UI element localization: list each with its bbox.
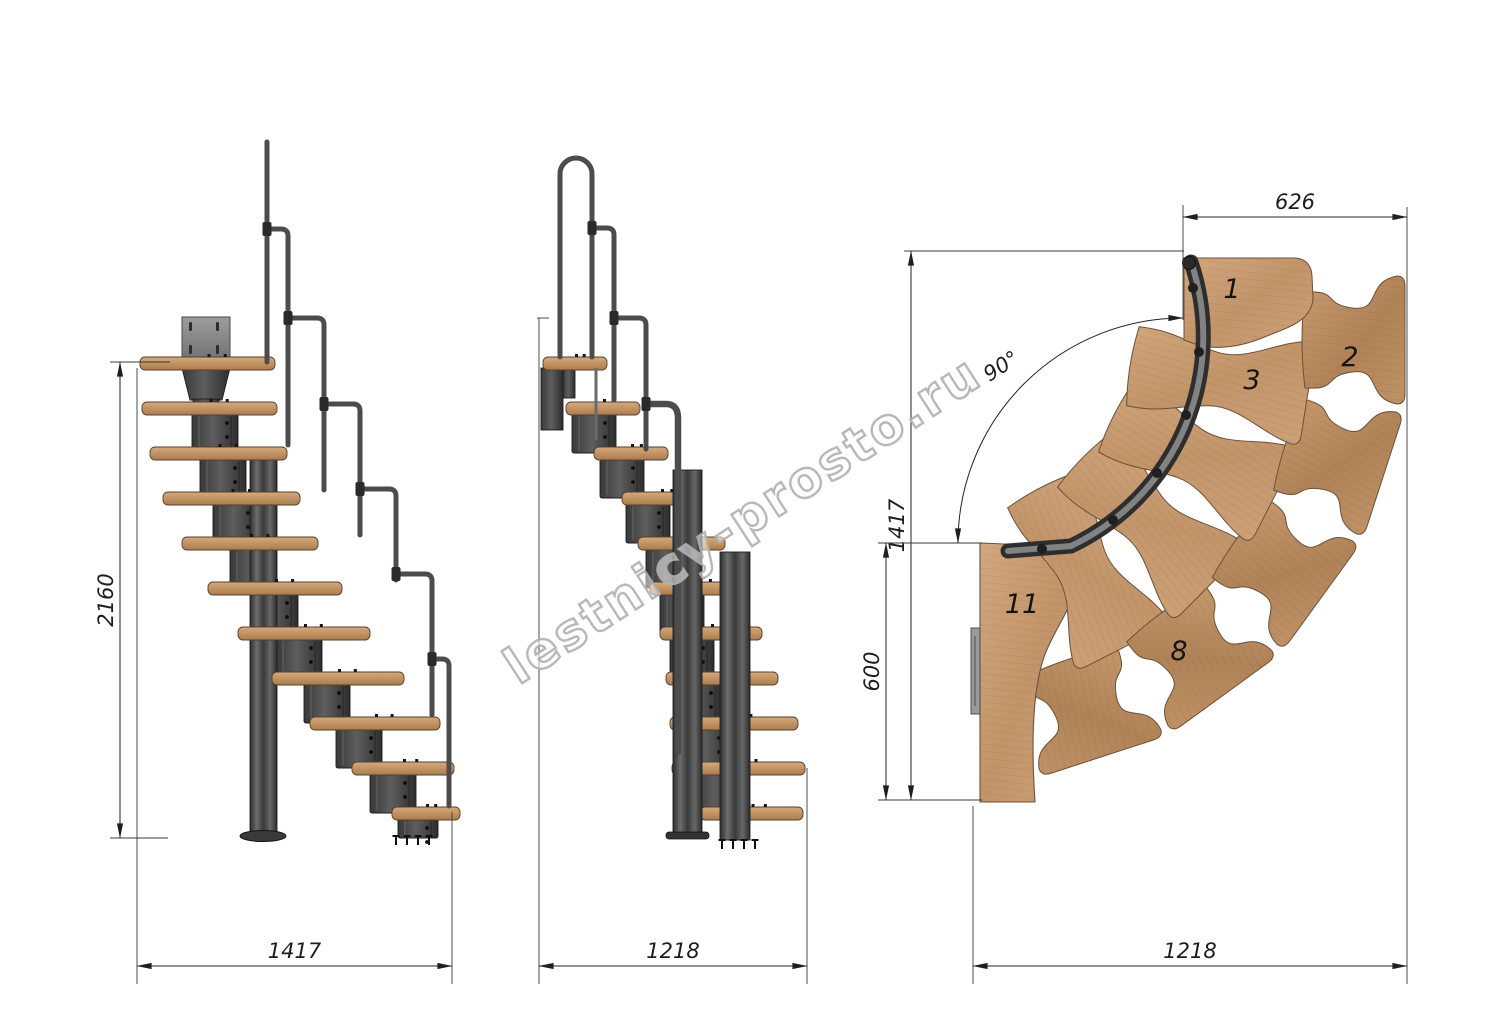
tread-side bbox=[594, 447, 668, 460]
drawing-page: 21601417 1218 6261417600121890°123811 le… bbox=[0, 0, 1500, 1027]
bolt-nub bbox=[232, 489, 235, 492]
bolt-nub bbox=[631, 444, 634, 447]
bolt-nub bbox=[709, 579, 712, 582]
bolt-nub bbox=[338, 669, 341, 672]
tread-side bbox=[140, 357, 275, 370]
bolt-nub bbox=[603, 399, 606, 402]
bolt-nub bbox=[661, 489, 664, 492]
bolt-nub bbox=[764, 804, 767, 807]
rail-joint-collar bbox=[392, 567, 401, 581]
staircase-technical-drawing: 21601417 1218 6261417600121890°123811 le… bbox=[0, 0, 1500, 1027]
bolt bbox=[403, 795, 407, 799]
bolt-nub bbox=[375, 714, 378, 717]
bolt bbox=[657, 511, 661, 515]
plan-dim-top-label: 626 bbox=[1275, 190, 1315, 214]
rail-joint-collar bbox=[320, 397, 329, 411]
column-foot bbox=[666, 832, 709, 839]
bolt bbox=[285, 601, 289, 605]
bolt bbox=[603, 421, 607, 425]
rail-joint-collar bbox=[610, 311, 619, 325]
bolt bbox=[225, 421, 229, 425]
bolt bbox=[337, 705, 341, 709]
plan-tread-label: 11 bbox=[1005, 589, 1039, 620]
bolt-nub bbox=[426, 804, 429, 807]
bolt bbox=[246, 511, 250, 515]
rail-joint-collar bbox=[284, 311, 293, 325]
bolt-nub bbox=[291, 579, 294, 582]
handrail-segment bbox=[324, 404, 360, 535]
bolt bbox=[631, 480, 635, 484]
bolt-nub bbox=[434, 804, 437, 807]
bolt bbox=[309, 660, 313, 664]
rail-joint-collar bbox=[263, 222, 272, 236]
bolt bbox=[603, 435, 607, 439]
bolt-nub bbox=[583, 354, 586, 357]
bolt bbox=[657, 525, 661, 529]
plan-view: 6261417600121890°123811 bbox=[860, 190, 1407, 984]
side-elevation-view: 21601417 bbox=[94, 142, 460, 984]
handrail-segment bbox=[614, 318, 646, 449]
bolt-nub bbox=[275, 579, 278, 582]
bolt-nub bbox=[210, 399, 213, 402]
bolt-nub bbox=[711, 624, 714, 627]
handrail-segment bbox=[288, 318, 324, 490]
handrail-joint bbox=[1188, 283, 1198, 293]
tread-side bbox=[700, 807, 803, 820]
bolt-nub bbox=[320, 624, 323, 627]
tread-side bbox=[163, 492, 300, 505]
tread-side bbox=[182, 537, 318, 550]
handrail-segment bbox=[432, 659, 449, 806]
wall-bracket bbox=[541, 368, 563, 430]
bolt bbox=[233, 480, 237, 484]
bolt bbox=[233, 466, 237, 470]
rail-joint-collar bbox=[356, 482, 365, 496]
wall-bracket-step bbox=[563, 368, 575, 398]
bolt-nub bbox=[226, 399, 229, 402]
tread-side bbox=[566, 402, 640, 415]
bolt bbox=[309, 646, 313, 650]
bolt bbox=[337, 691, 341, 695]
plan-angle-label: 90° bbox=[979, 346, 1023, 386]
plan-tread-2-grain bbox=[1302, 276, 1405, 404]
bolt-nub bbox=[235, 444, 238, 447]
plate-slot bbox=[189, 322, 192, 331]
plate-slot bbox=[216, 345, 219, 354]
rail-joint-collar bbox=[642, 397, 651, 411]
tread-side bbox=[238, 627, 370, 640]
bolt bbox=[403, 781, 407, 785]
handrail-joint bbox=[1108, 515, 1118, 525]
plan-tread-label: 2 bbox=[1341, 342, 1358, 373]
plan-tread-label: 3 bbox=[1243, 365, 1260, 396]
bolt-nub bbox=[415, 759, 418, 762]
bolt-nub bbox=[248, 489, 251, 492]
handrail-joint bbox=[1152, 468, 1162, 478]
tread-side bbox=[310, 717, 440, 730]
bolt-nub bbox=[640, 444, 643, 447]
handrail-joint bbox=[1037, 544, 1047, 554]
bolt bbox=[285, 615, 289, 619]
bolt-nub bbox=[219, 444, 222, 447]
bolt-nub bbox=[266, 534, 269, 537]
plan-tread-label: 1 bbox=[1223, 274, 1240, 305]
bolt bbox=[631, 466, 635, 470]
plan-dim-bottom-label: 1218 bbox=[1163, 939, 1216, 963]
bolt-nub bbox=[250, 534, 253, 537]
rail-joint-collar bbox=[588, 221, 597, 235]
tread-side bbox=[352, 762, 454, 775]
support-column bbox=[250, 452, 277, 834]
handrail-joint bbox=[1194, 347, 1204, 357]
side-dim-width-label: 1417 bbox=[268, 939, 322, 963]
plate-slot bbox=[216, 322, 219, 331]
bolt bbox=[369, 736, 373, 740]
plate-funnel bbox=[182, 368, 230, 400]
bolt bbox=[369, 750, 373, 754]
handrail-segment bbox=[396, 574, 432, 715]
handrail-loop bbox=[560, 158, 592, 357]
bolt bbox=[425, 826, 429, 830]
support-column-lower bbox=[720, 552, 750, 840]
bolt-nub bbox=[575, 354, 578, 357]
plan-dim-side-label: 1417 bbox=[885, 498, 909, 552]
bolt bbox=[225, 435, 229, 439]
bolt bbox=[709, 705, 713, 709]
tread-side bbox=[142, 402, 277, 415]
bolt-nub bbox=[403, 759, 406, 762]
handrail-ball-end bbox=[1183, 257, 1196, 270]
bolt-nub bbox=[304, 624, 307, 627]
tread-side bbox=[392, 807, 460, 820]
bolt-nub bbox=[391, 714, 394, 717]
bolt bbox=[246, 525, 250, 529]
handrail-joint bbox=[1181, 410, 1191, 420]
tread-side bbox=[272, 672, 404, 685]
rail-joint-collar bbox=[428, 652, 437, 666]
bolt-nub bbox=[754, 759, 757, 762]
bolt-nub bbox=[354, 669, 357, 672]
column-foot bbox=[240, 831, 286, 842]
side-dim-height-label: 2160 bbox=[94, 573, 118, 626]
bolt-nub bbox=[208, 354, 211, 357]
plan-tread-label: 8 bbox=[1170, 636, 1187, 667]
bolt bbox=[709, 691, 713, 695]
plan-dim-offset-label: 600 bbox=[860, 651, 884, 691]
bolt-nub bbox=[752, 804, 755, 807]
tread-side bbox=[208, 582, 342, 595]
handrail-segment bbox=[360, 489, 396, 580]
bolt-nub bbox=[224, 354, 227, 357]
tread-side bbox=[150, 447, 287, 460]
front-dim-width-label: 1218 bbox=[646, 939, 699, 963]
plate-slot bbox=[189, 345, 192, 354]
